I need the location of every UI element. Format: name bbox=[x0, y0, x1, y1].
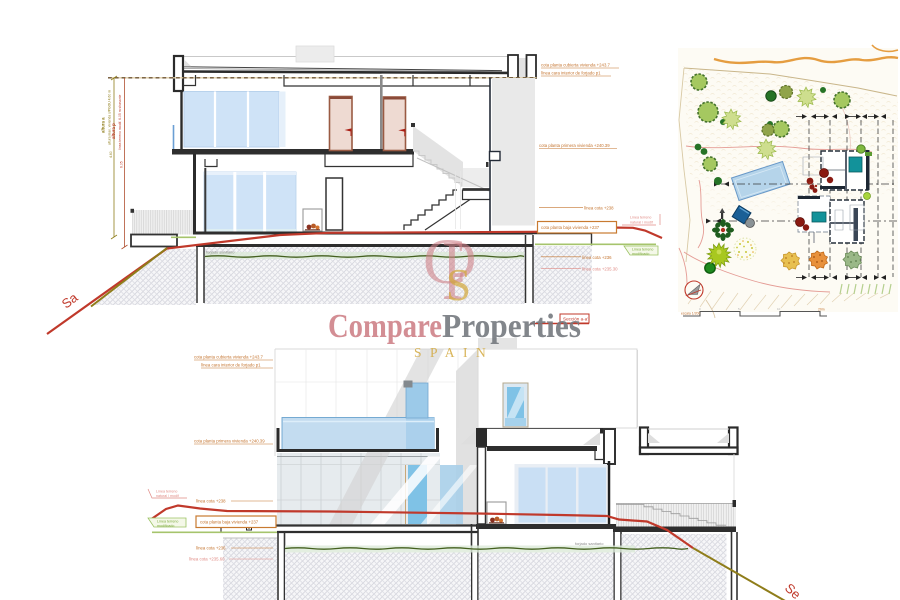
svg-text:línea cara interior de forjado: línea cara interior de forjado p1 bbox=[201, 363, 261, 368]
svg-text:línea cota +236: línea cota +236 bbox=[196, 546, 226, 551]
svg-text:forjado sanitario: forjado sanitario bbox=[575, 541, 604, 546]
svg-text:escala 1/200: escala 1/200 bbox=[681, 312, 700, 316]
svg-text:cota planta baja vivienda +237: cota planta baja vivienda +237 bbox=[200, 520, 259, 525]
svg-text:cota planta primera vivienda +: cota planta primera vivienda +240.39 bbox=[539, 143, 610, 148]
svg-text:Línea terreno: Línea terreno bbox=[156, 490, 177, 494]
svg-text:Properties: Properties bbox=[442, 308, 581, 345]
svg-text:Línea terreno: Línea terreno bbox=[157, 520, 178, 524]
svg-text:línea cara interior de forjado: línea cara interior de forjado p1 bbox=[541, 71, 601, 76]
svg-text:línea cota +236: línea cota +236 bbox=[582, 255, 612, 260]
svg-text:SPAIN: SPAIN bbox=[414, 345, 494, 360]
svg-text:4.60: 4.60 bbox=[109, 151, 113, 158]
svg-text:altura p: altura p bbox=[111, 123, 116, 139]
svg-text:línea cota +238: línea cota +238 bbox=[196, 499, 226, 504]
svg-text:S: S bbox=[446, 260, 471, 310]
svg-text:Línea terreno: Línea terreno bbox=[632, 248, 653, 252]
svg-text:cota planta baja vivienda +237: cota planta baja vivienda +237 bbox=[541, 225, 600, 230]
svg-text:cota planta cubierta vivienda: cota planta cubierta vivienda +243.7 bbox=[194, 355, 264, 360]
svg-text:línea cota +235.60: línea cota +235.60 bbox=[189, 557, 225, 562]
svg-text:natural / modif: natural / modif bbox=[156, 494, 179, 498]
svg-text:cota planta primera vivienda +: cota planta primera vivienda +240.39 bbox=[194, 439, 265, 444]
svg-text:línea cota +238: línea cota +238 bbox=[584, 206, 614, 211]
svg-text:forjado sanitario: forjado sanitario bbox=[206, 250, 235, 255]
svg-text:modificado: modificado bbox=[632, 252, 649, 256]
svg-text:6.05: 6.05 bbox=[120, 161, 124, 168]
svg-text:20m: 20m bbox=[818, 308, 825, 312]
svg-text:Línea terreno: Línea terreno bbox=[630, 216, 651, 220]
svg-text:Compare: Compare bbox=[328, 308, 442, 345]
svg-text:línea terreno modif. 6.05 m s/: línea terreno modif. 6.05 m s/rasante bbox=[118, 94, 122, 150]
svg-text:altura a: altura a bbox=[101, 117, 106, 133]
svg-text:natural / modif: natural / modif bbox=[630, 221, 653, 225]
svg-text:10: 10 bbox=[777, 307, 781, 311]
svg-text:línea cota +235.30: línea cota +235.30 bbox=[582, 267, 618, 272]
svg-text:modificado: modificado bbox=[157, 524, 174, 528]
svg-text:cota planta cubierta vivienda: cota planta cubierta vivienda +243.7 bbox=[541, 63, 611, 68]
